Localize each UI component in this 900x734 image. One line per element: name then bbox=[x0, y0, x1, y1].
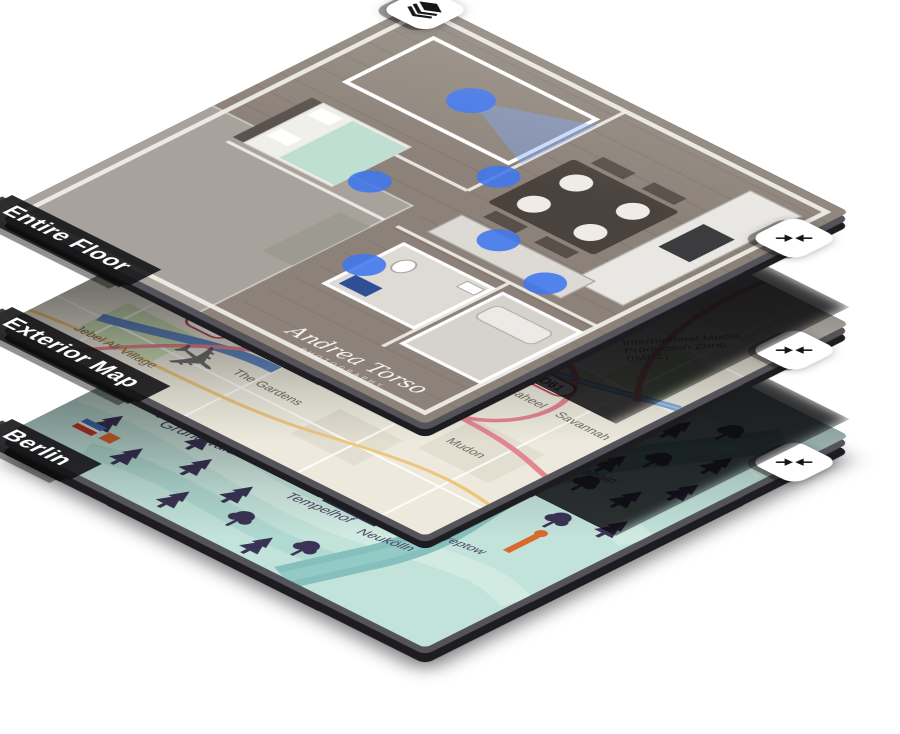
layer-entire-floor: Andrea Torso PHOTOGRAPHY Entire Floor bbox=[0, 0, 900, 734]
collapse-horizontal-icon bbox=[775, 229, 813, 248]
layer-stack-scene: Grunewald Schöneberg Tempelhof Neukölln … bbox=[0, 0, 900, 734]
layers-icon bbox=[397, 0, 454, 24]
